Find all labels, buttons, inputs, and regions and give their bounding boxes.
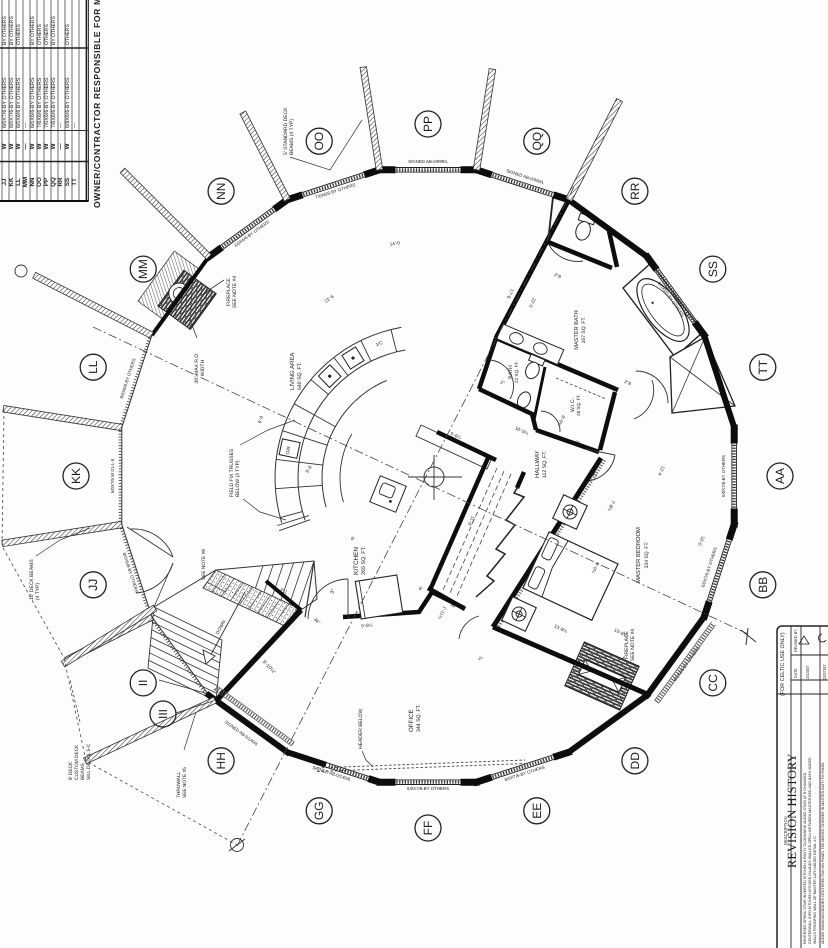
svg-text:—: — — [58, 122, 64, 128]
svg-text:SIGNED AB-0/999/L: SIGNED AB-0/999/L — [408, 159, 448, 164]
svg-text:QQ: QQ — [530, 132, 544, 151]
svg-text:KK: KK — [69, 468, 83, 484]
svg-text:W: W — [8, 143, 15, 149]
svg-text:LIVING AREA: LIVING AREA — [289, 353, 296, 390]
svg-text:FF: FF — [421, 821, 435, 836]
svg-text:SEE NOTE #4: SEE NOTE #4 — [232, 276, 238, 308]
svg-text:BEAMS (4 TYP): BEAMS (4 TYP) — [289, 119, 295, 155]
svg-text:LL: LL — [15, 178, 22, 186]
svg-text:EE: EE — [530, 803, 544, 819]
svg-text:BY OTHERS: BY OTHERS — [51, 16, 57, 45]
svg-text:OTHERS: OTHERS — [37, 24, 43, 46]
svg-text:—: — — [72, 122, 78, 128]
svg-text:W: W — [43, 143, 50, 149]
svg-text:HALLWAY: HALLWAY — [534, 450, 541, 478]
svg-text:OFFICE: OFFICE — [408, 709, 415, 732]
svg-text:6/0X7/6-BY OTHERS: 6/0X7/6-BY OTHERS — [9, 77, 15, 128]
svg-text:RR: RR — [628, 182, 642, 200]
svg-text:6/9X6/6-BY OTHERS: 6/9X6/6-BY OTHERS — [65, 77, 71, 128]
svg-text:(4 TYP): (4 TYP) — [35, 583, 41, 600]
svg-text:6/0X7/6 W 01-L-5: 6/0X7/6 W 01-L-5 — [110, 458, 115, 493]
svg-text:344 SQ. FT.: 344 SQ. FT. — [416, 704, 422, 732]
svg-text:CENTERWALL INFO KITCHEN KITC: CENTERWALL INFO KITCHEN KITCHEN ISLANDS … — [808, 757, 812, 944]
svg-text:KK: KK — [8, 177, 15, 186]
svg-text:GG: GG — [312, 801, 326, 820]
svg-text:6/0X7/6-BY OTHERS: 6/0X7/6-BY OTHERS — [407, 786, 449, 791]
svg-text:W: W — [15, 143, 22, 149]
svg-text:TT: TT — [756, 359, 770, 374]
svg-text:TT: TT — [71, 178, 78, 186]
svg-text:W: W — [50, 143, 57, 149]
svg-text:CC: CC — [706, 674, 720, 692]
svg-text:8' DECK: 8' DECK — [68, 761, 74, 780]
svg-text:SEE NOTE #8: SEE NOTE #8 — [201, 549, 207, 580]
svg-text:HEADER BELOW: HEADER BELOW — [358, 708, 364, 749]
svg-text:BY OTHERS: BY OTHERS — [30, 16, 36, 45]
svg-text:BB: BB — [756, 577, 770, 593]
svg-text:KITCHEN: KITCHEN — [353, 547, 360, 575]
svg-text:BELOW (3 TYP): BELOW (3 TYP) — [235, 460, 241, 497]
svg-text:7/0X6/6-BY OTHERS: 7/0X6/6-BY OTHERS — [44, 77, 50, 128]
svg-text:NN: NN — [214, 183, 228, 200]
svg-text:HH: HH — [214, 752, 228, 769]
svg-text:RR: RR — [57, 177, 64, 186]
svg-text:WIDTH: WIDTH — [200, 359, 206, 376]
svg-text:02/27/07: 02/27/07 — [822, 664, 827, 680]
svg-text:MASTER BEDROOM: MASTER BEDROOM — [635, 527, 642, 583]
svg-text:SEE NOTE #4: SEE NOTE #4 — [630, 629, 636, 661]
svg-text:JJ: JJ — [1, 178, 8, 185]
svg-text:7/6X6/6 BY OTHERS: 7/6X6/6 BY OTHERS — [37, 77, 43, 128]
svg-text:PP: PP — [43, 178, 50, 186]
svg-text:640 SQ. FT.: 640 SQ. FT. — [297, 362, 303, 390]
svg-text:II: II — [136, 680, 150, 687]
svg-text:OTHERS: OTHERS — [16, 24, 22, 46]
svg-text:SEE NOTE #5: SEE NOTE #5 — [182, 767, 188, 798]
svg-text:CUSTOM DECK: CUSTOM DECK — [74, 744, 80, 780]
svg-text:REVERSED SPIRAL STAIR INVER: REVERSED SPIRAL STAIR INVERTED KITCHEN &… — [803, 772, 807, 944]
svg-text:SILL DETAIL 5-C: SILL DETAIL 5-C — [86, 743, 92, 780]
svg-text:W: W — [64, 143, 71, 149]
svg-text:—: — — [22, 143, 29, 150]
svg-text:W: W — [36, 143, 43, 149]
svg-text:—: — — [23, 122, 29, 128]
svg-text:OTHERS: OTHERS — [44, 24, 50, 46]
svg-text:SS: SS — [706, 261, 720, 277]
svg-text:JJ: JJ — [86, 579, 100, 591]
svg-text:DATE: DATE — [794, 668, 798, 678]
svg-text:III: III — [156, 709, 170, 719]
svg-text:DESCRIPTION: DESCRIPTION — [783, 816, 788, 845]
svg-text:6/0X7/6-BY OTHERS: 6/0X7/6-BY OTHERS — [2, 77, 8, 128]
svg-text:6/0X6/6-BY OTHERS: 6/0X6/6-BY OTHERS — [30, 77, 36, 128]
svg-text:MM: MM — [136, 259, 150, 279]
svg-text:OO: OO — [312, 132, 326, 151]
svg-text:22 SQ. FT.: 22 SQ. FT. — [514, 361, 519, 383]
svg-text:(FOR CELTIC USE ONLY): (FOR CELTIC USE ONLY) — [780, 632, 786, 696]
svg-text:DD: DD — [628, 752, 642, 770]
svg-text:W: W — [1, 143, 8, 149]
svg-text:7/6X6/6-BY OTHERS: 7/6X6/6-BY OTHERS — [51, 77, 57, 128]
svg-text:MASTER BATH: MASTER BATH — [574, 310, 580, 349]
svg-text:BEAMS: BEAMS — [80, 763, 86, 780]
svg-text:W: W — [29, 143, 36, 149]
svg-text:6/0X6/6 BY OTHERS: 6/0X6/6 BY OTHERS — [16, 77, 22, 128]
svg-text:2/13/07: 2/13/07 — [805, 665, 810, 679]
svg-text:OO: OO — [36, 177, 43, 187]
svg-text:REVISION HISTORY: REVISION HISTORY — [785, 753, 799, 868]
svg-text:OWNER/CONTRACTOR RESPONSIBLE F: OWNER/CONTRACTOR RESPONSIBLE FOR M — [92, 0, 102, 208]
svg-text:26 SQ. FT.: 26 SQ. FT. — [576, 394, 581, 416]
svg-text:WALLS PROOFING WALL OF MASTER: WALLS PROOFING WALL OF MASTER LATH ADDED… — [813, 836, 817, 944]
svg-text:BY OTHERS: BY OTHERS — [2, 16, 8, 45]
svg-text:MM: MM — [22, 177, 29, 187]
svg-text:SS: SS — [64, 178, 71, 186]
svg-text:PP: PP — [421, 116, 435, 132]
svg-text:167 SQ. FT.: 167 SQ. FT. — [581, 317, 587, 344]
svg-text:5'-8¼: 5'-8¼ — [361, 623, 373, 629]
svg-text:THRUWALL: THRUWALL — [176, 771, 182, 798]
svg-text:OTHERS: OTHERS — [65, 24, 71, 46]
svg-text:AA: AA — [773, 468, 787, 484]
svg-text:BY OTHERS: BY OTHERS — [9, 16, 15, 45]
svg-text:LL: LL — [86, 360, 100, 374]
svg-text:ADDED WINDOWS/DOORS CENTERED: ADDED WINDOWS/DOORS CENTERED FAN ON PANE… — [821, 762, 825, 944]
svg-text:REVISED BY: REVISED BY — [794, 629, 798, 652]
svg-text:NN: NN — [29, 177, 36, 186]
svg-text:—: — — [57, 143, 64, 150]
svg-text:QQ: QQ — [50, 177, 57, 187]
svg-text:6/0X7/6-BY OTHERS: 6/0X7/6-BY OTHERS — [721, 455, 726, 497]
svg-text:265 SQ. FT.: 265 SQ. FT. — [361, 546, 367, 575]
svg-text:334 SQ. FT.: 334 SQ. FT. — [644, 542, 650, 569]
svg-text:112 SQ. FT.: 112 SQ. FT. — [542, 451, 548, 478]
